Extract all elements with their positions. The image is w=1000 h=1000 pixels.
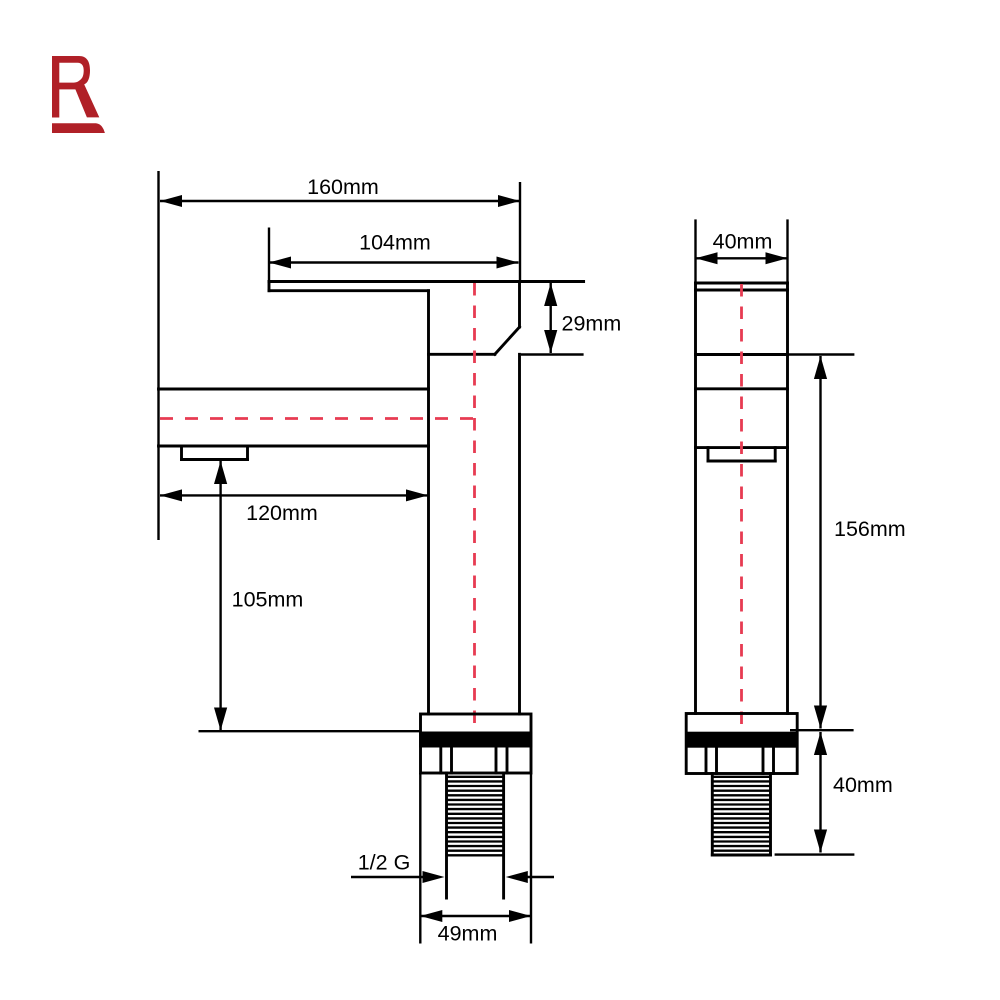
svg-text:40mm: 40mm — [713, 230, 773, 254]
svg-text:29mm: 29mm — [562, 312, 622, 336]
svg-text:105mm: 105mm — [232, 588, 304, 612]
svg-text:49mm: 49mm — [438, 922, 498, 946]
svg-text:104mm: 104mm — [359, 231, 431, 255]
svg-text:1/2 G: 1/2 G — [358, 851, 411, 875]
svg-text:120mm: 120mm — [246, 501, 318, 525]
svg-text:156mm: 156mm — [834, 517, 906, 541]
svg-text:40mm: 40mm — [833, 773, 893, 797]
svg-text:160mm: 160mm — [307, 175, 379, 199]
